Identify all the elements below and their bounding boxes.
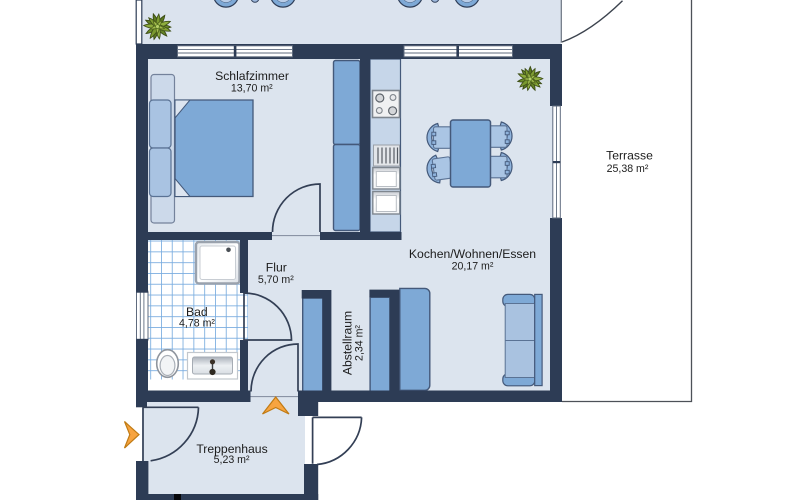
svg-text:5,70 m²: 5,70 m² [258,274,294,286]
svg-text:Flur: Flur [266,261,287,275]
svg-text:20,17 m²: 20,17 m² [452,261,494,273]
svg-text:13,70 m²: 13,70 m² [231,82,273,94]
svg-text:4,78 m²: 4,78 m² [179,318,215,330]
svg-text:Abstellraum: Abstellraum [341,311,355,375]
svg-text:Schlafzimmer: Schlafzimmer [215,69,289,83]
svg-text:Terrasse: Terrasse [606,149,653,163]
svg-text:Kochen/Wohnen/Essen: Kochen/Wohnen/Essen [409,247,536,261]
svg-text:25,38 m²: 25,38 m² [607,163,649,175]
svg-text:5,23 m²: 5,23 m² [214,454,250,466]
svg-text:2,34 m²: 2,34 m² [354,325,366,361]
